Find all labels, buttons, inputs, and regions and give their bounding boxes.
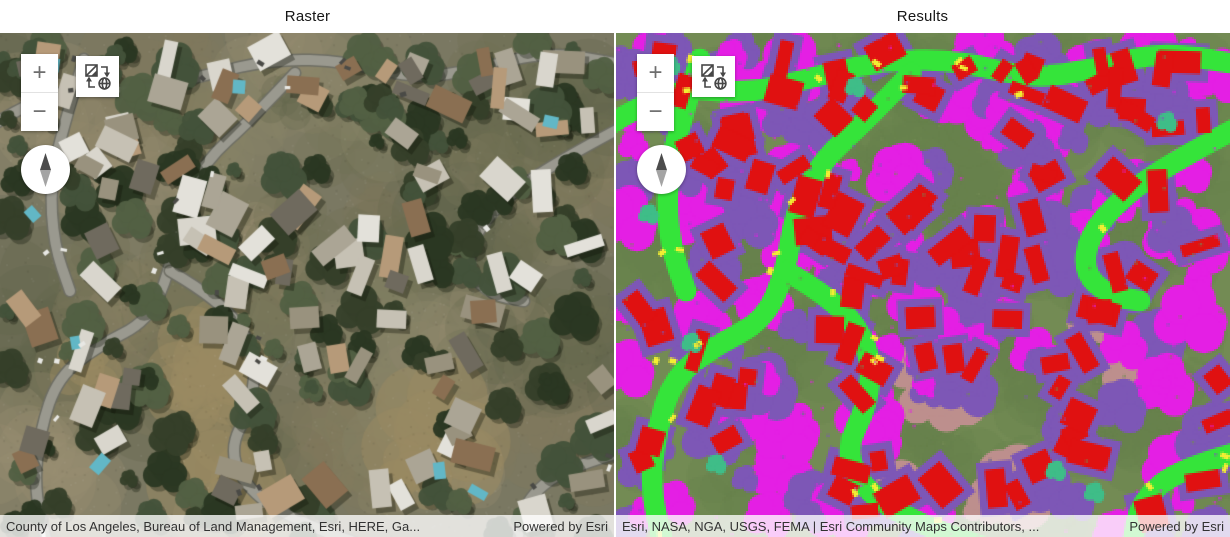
swap-layers-button[interactable] xyxy=(692,56,735,97)
swap-layers-icon xyxy=(699,62,729,92)
zoom-control: + − xyxy=(637,54,674,131)
powered-by-esri-link[interactable]: Powered by Esri xyxy=(513,519,608,534)
swap-layers-icon xyxy=(83,62,113,92)
right-map-title: Results xyxy=(615,0,1230,33)
powered-by-esri-link[interactable]: Powered by Esri xyxy=(1129,519,1224,534)
maps-container: + − xyxy=(0,33,1230,537)
raster-panel: + − xyxy=(0,33,614,537)
results-map[interactable] xyxy=(616,33,1230,537)
left-map-title: Raster xyxy=(0,0,615,33)
title-bar: Raster Results xyxy=(0,0,1230,33)
compass-button[interactable] xyxy=(21,145,70,194)
zoom-in-button[interactable]: + xyxy=(21,54,58,92)
attribution-bar: Esri, NASA, NGA, USGS, FEMA | Esri Commu… xyxy=(616,515,1230,537)
compass-needle-icon xyxy=(637,145,686,194)
attribution-sources: Esri, NASA, NGA, USGS, FEMA | Esri Commu… xyxy=(622,519,1039,534)
compass-button[interactable] xyxy=(637,145,686,194)
attribution-bar: County of Los Angeles, Bureau of Land Ma… xyxy=(0,515,614,537)
zoom-in-button[interactable]: + xyxy=(637,54,674,92)
results-panel: + − xyxy=(616,33,1230,537)
attribution-sources: County of Los Angeles, Bureau of Land Ma… xyxy=(6,519,420,534)
raster-map[interactable] xyxy=(0,33,614,537)
zoom-control: + − xyxy=(21,54,58,131)
zoom-out-button[interactable]: − xyxy=(637,93,674,131)
compass-needle-icon xyxy=(21,145,70,194)
swap-layers-button[interactable] xyxy=(76,56,119,97)
zoom-out-button[interactable]: − xyxy=(21,93,58,131)
swipe-compare-app: Raster Results + − xyxy=(0,0,1230,537)
